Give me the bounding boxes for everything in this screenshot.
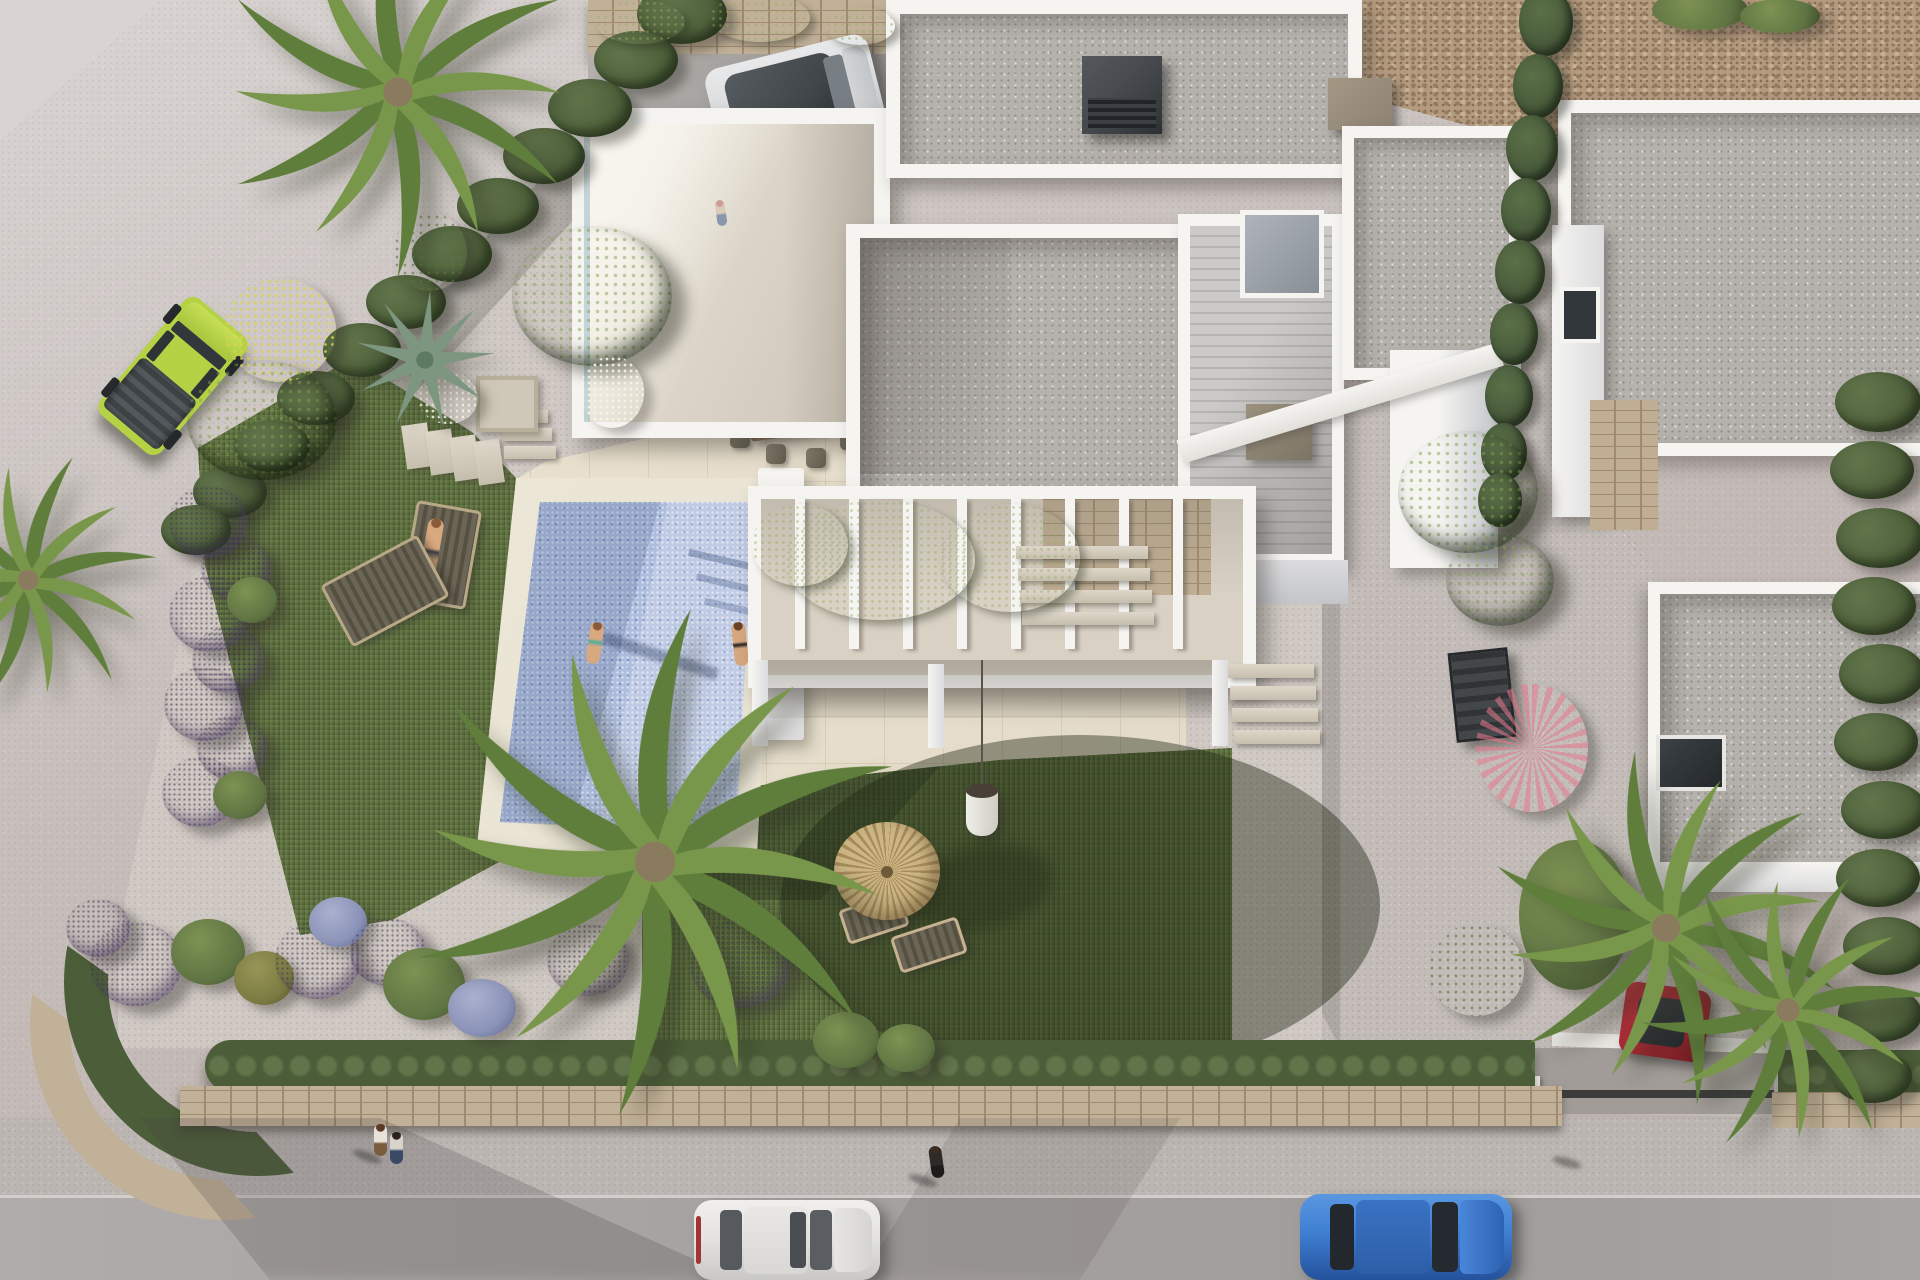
green-ball (227, 577, 277, 623)
tree (1446, 534, 1554, 626)
carport-vine (710, 0, 810, 42)
pergola-vine (752, 504, 848, 586)
white-car-rear-window (720, 1210, 742, 1270)
carport-vine (595, 0, 685, 44)
white-car-hood (834, 1208, 872, 1272)
pergola-vine (940, 504, 1080, 612)
blue-car-roof (1356, 1200, 1430, 1274)
white-car (694, 1200, 880, 1280)
cypress (1513, 54, 1563, 118)
walking-couple-person-2 (390, 1132, 403, 1164)
cypress (1495, 240, 1545, 304)
hedge-blob (1834, 713, 1918, 771)
white-bush (580, 356, 644, 428)
tree (1398, 431, 1538, 553)
white-car-sunroof (790, 1212, 806, 1268)
blue-car-hood (1460, 1200, 1504, 1274)
green-bush (877, 1024, 935, 1072)
hedge-blob (1836, 508, 1920, 568)
hedge-blob (1841, 781, 1920, 839)
cypress (1490, 303, 1538, 365)
blue-car-windshield (1432, 1202, 1458, 1272)
blue-car (1300, 1194, 1512, 1280)
cypress (1519, 0, 1573, 56)
blue-car-rear-window (1330, 1204, 1354, 1270)
carport-vine (825, 7, 895, 45)
hedge-blob (1830, 441, 1914, 499)
agave-plant (330, 282, 520, 438)
white-car-windshield (810, 1210, 832, 1270)
tree (187, 360, 337, 480)
green-top (1740, 0, 1820, 33)
green-top (1652, 0, 1748, 30)
hedge-blob (1839, 644, 1920, 704)
green-ball (213, 771, 267, 819)
cypress (1501, 178, 1551, 242)
purple-ball (90, 922, 182, 1006)
cypress (1506, 115, 1558, 181)
walking-couple-person-1 (374, 1124, 387, 1156)
white-car-taillight (696, 1216, 701, 1264)
palm-tree-garden-big (390, 597, 921, 1128)
hedge-blob (1832, 577, 1916, 635)
aerial-render-scene (0, 0, 1920, 1280)
palm-tree-top-left (228, 0, 568, 262)
hedge-blob (1835, 372, 1920, 432)
cypress (1485, 365, 1533, 427)
